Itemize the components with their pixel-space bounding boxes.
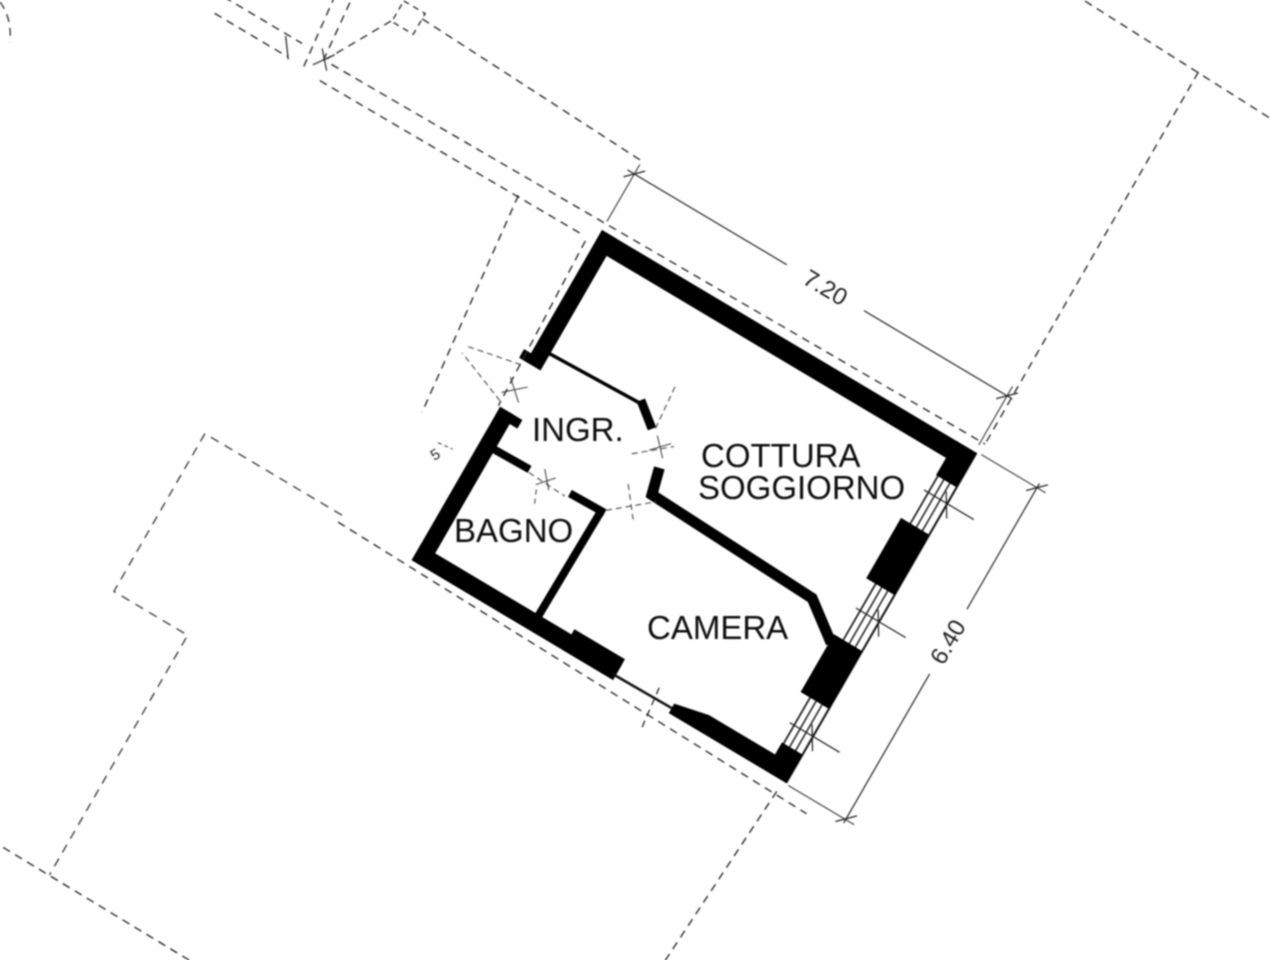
svg-text:5: 5: [428, 445, 444, 464]
svg-text:SOGGIORNO: SOGGIORNO: [698, 469, 905, 506]
svg-text:CAMERA: CAMERA: [647, 609, 788, 646]
svg-text:INGR.: INGR.: [532, 411, 624, 448]
svg-text:BAGNO: BAGNO: [454, 512, 573, 549]
svg-text:6.40: 6.40: [925, 615, 971, 669]
svg-text:7.20: 7.20: [798, 265, 851, 312]
